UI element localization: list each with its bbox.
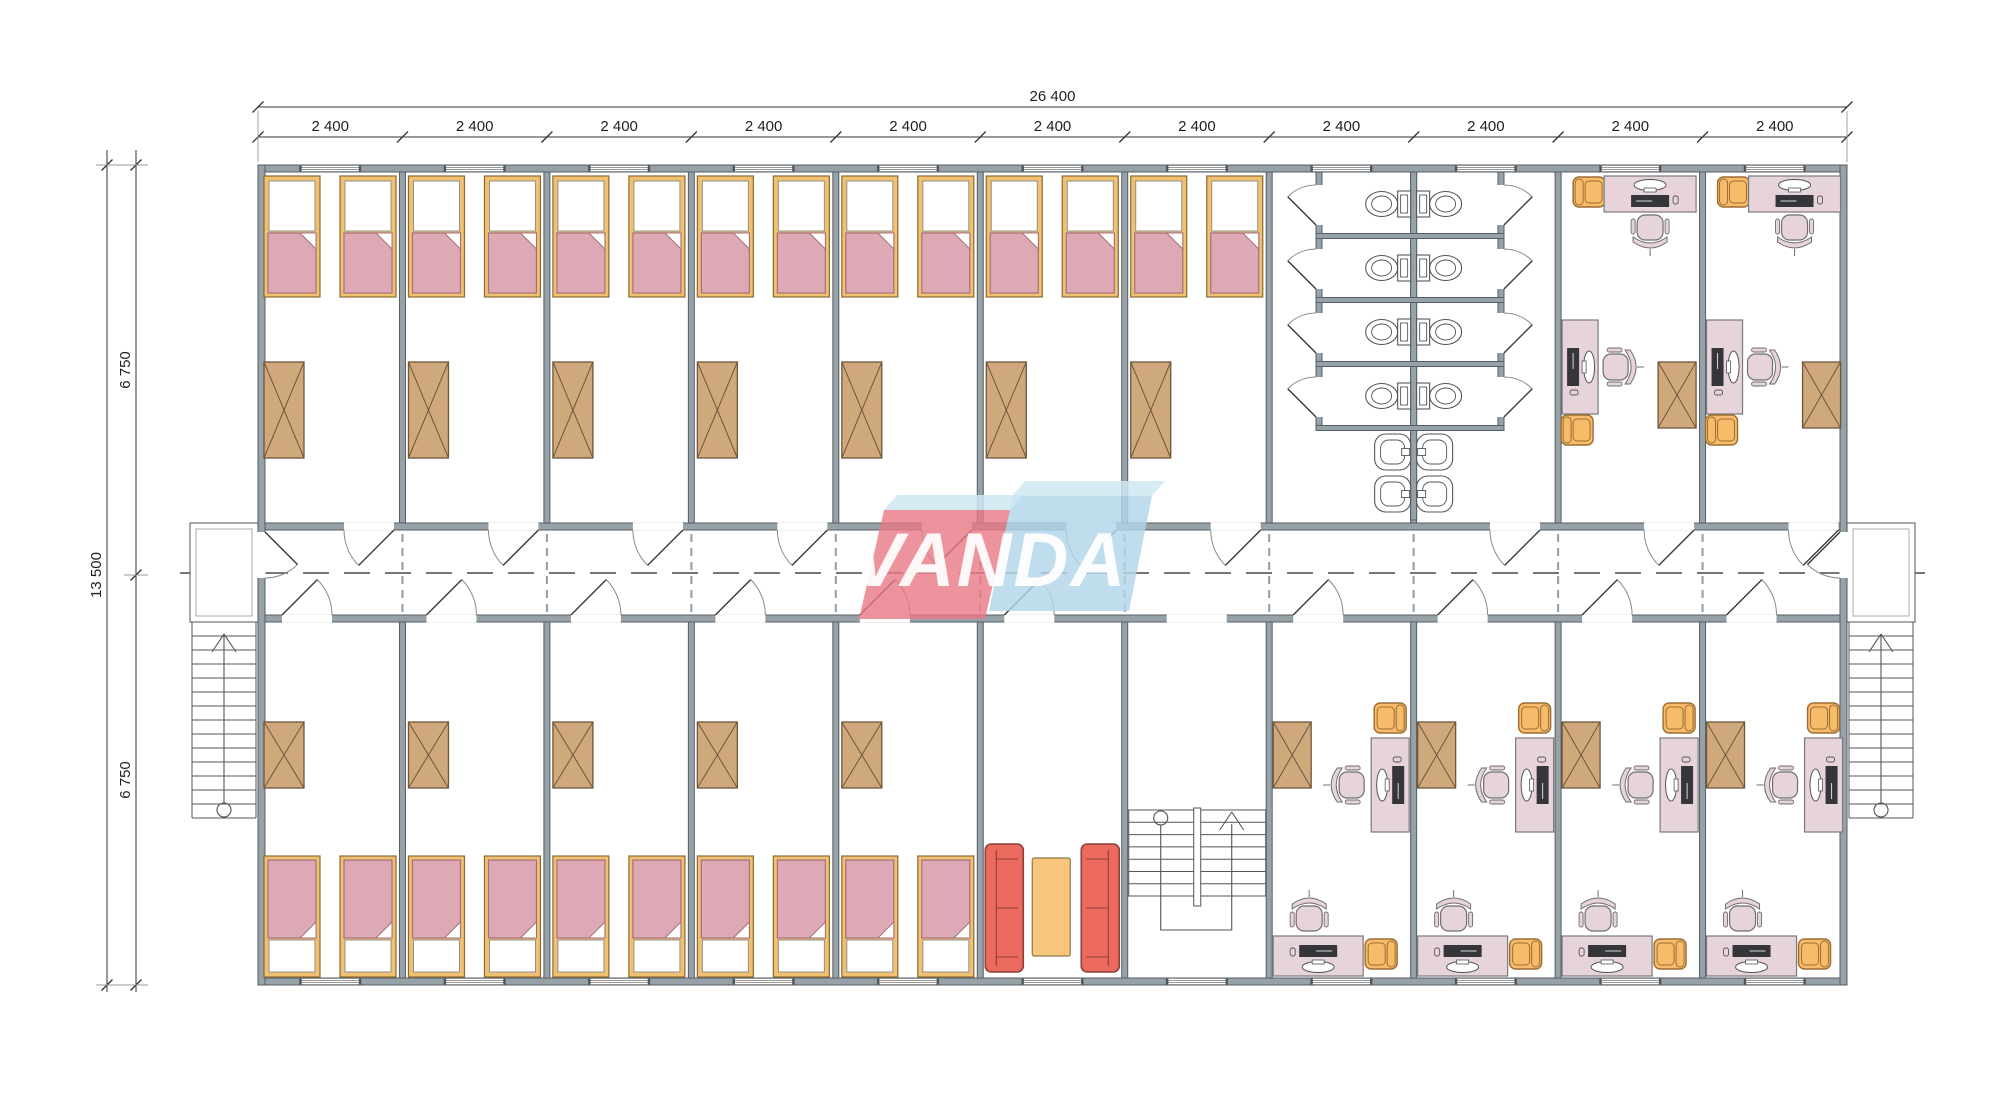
pillow [847,181,893,231]
bed [1207,176,1263,297]
blanket [268,860,316,938]
bed [773,176,829,297]
wall [1316,362,1504,367]
pillow [413,181,459,231]
wardrobe [697,362,737,458]
bed [629,856,685,977]
wall [688,622,694,978]
logo-text: VANDA [853,518,1128,603]
dim-label: 2 400 [889,118,927,135]
coffee-table [1032,858,1070,956]
dim-label: 2 400 [745,118,783,135]
bed [1131,176,1187,297]
dim-label: 2 400 [1756,118,1794,135]
pillow [413,940,459,972]
dim-label: 2 400 [1178,118,1216,135]
bed [986,176,1042,297]
pillow [702,181,748,231]
side-chair [1365,939,1397,969]
bed [697,176,753,297]
window [877,979,939,985]
wall [399,172,405,523]
wall [1700,172,1706,523]
side-chair [1799,939,1831,969]
wardrobe [842,722,882,788]
wall [1266,172,1272,523]
side-chair [1706,415,1738,445]
bed [1062,176,1118,297]
window [1599,166,1661,172]
dim-label: 2 400 [311,118,349,135]
wall [1555,622,1561,978]
dim-label: 6 750 [117,351,134,389]
wall [833,172,839,523]
wardrobe [697,722,737,788]
window [1599,979,1661,985]
window [1166,166,1228,172]
wall [544,622,550,978]
side-chair [1561,415,1593,445]
pillow [489,940,535,972]
wardrobe [1562,722,1600,788]
toilet-icon [1366,383,1411,409]
bed [553,176,609,297]
blanket [777,860,825,938]
bed [264,856,320,977]
pillow [558,181,604,231]
bed [842,176,898,297]
pillow [345,940,391,972]
wardrobe [1803,362,1841,428]
side-chair [1718,177,1750,207]
window [1022,166,1084,172]
pillow [991,181,1037,231]
wardrobe [1658,362,1696,428]
window [299,166,361,172]
blanket [557,860,605,938]
window [1310,166,1372,172]
wall [1122,622,1128,978]
bed [842,856,898,977]
side-chair [1374,703,1406,733]
wall [1411,622,1417,978]
window [1166,979,1228,985]
landing [1847,523,1915,622]
wardrobe [986,362,1026,458]
toilet-icon [1366,191,1411,217]
window [444,979,506,985]
bed [408,176,464,297]
pillow [634,940,680,972]
dim-label: 2 400 [456,118,494,135]
wall [544,172,550,523]
bed [773,856,829,977]
bed [340,176,396,297]
side-chair [1510,939,1542,969]
wardrobe [553,722,593,788]
sink-icon [1417,476,1453,512]
dim-label: 2 400 [600,118,638,135]
toilet-icon [1417,383,1462,409]
toilet-icon [1417,255,1462,281]
pillow [489,181,535,231]
window [877,166,939,172]
top-room-9-toilets [1455,166,1517,172]
pillow [269,181,315,231]
pillow [702,940,748,972]
dim-label: 26 400 [1030,88,1076,105]
bed [629,176,685,297]
wardrobe [553,362,593,458]
blanket [412,860,460,938]
bed [484,176,540,297]
side-chair [1573,177,1605,207]
wall [833,622,839,978]
dim-label: 6 750 [117,761,134,799]
window [1744,979,1806,985]
pillow [558,940,604,972]
window [444,166,506,172]
pillow [345,181,391,231]
wardrobe [1273,722,1311,788]
pillow [923,940,969,972]
window [1455,166,1517,172]
floor-plan-drawing: 26 4002 4002 4002 4002 4002 4002 4002 40… [0,0,2000,1099]
window [1310,979,1372,985]
wardrobe [264,722,304,788]
pillow [269,940,315,972]
window [1022,979,1084,985]
wall [1266,622,1272,978]
wardrobe [1707,722,1745,788]
sofa [1081,844,1119,972]
wall [1316,298,1504,303]
bed [484,856,540,977]
toilet-icon [1366,255,1411,281]
blanket [701,860,749,938]
toilet-icon [1417,191,1462,217]
pillow [778,181,824,231]
bed [340,856,396,977]
side-chair [1663,703,1695,733]
bed [264,176,320,297]
bed [918,856,974,977]
logo-block-bevel [884,495,1023,510]
blanket [488,860,536,938]
sink-icon [1375,434,1411,470]
pillow [1212,181,1258,231]
logo: VANDA [853,481,1165,619]
bed [918,176,974,297]
wall [1122,172,1128,523]
window [733,166,795,172]
window [588,166,650,172]
sink-icon [1375,476,1411,512]
pillow [1067,181,1113,231]
blanket [846,860,894,938]
blanket [633,860,681,938]
wall [1555,172,1561,523]
pillow [634,181,680,231]
dim-label: 2 400 [1323,118,1361,135]
pillow [847,940,893,972]
window [1455,979,1517,985]
wardrobe [408,722,448,788]
side-chair [1808,703,1840,733]
dim-label: 2 400 [1612,118,1650,135]
window [1744,166,1806,172]
wardrobe [1131,362,1171,458]
sink-icon [1417,434,1453,470]
dim-label: 13 500 [88,552,105,598]
blanket [344,860,392,938]
side-chair [1654,939,1686,969]
wall [1700,622,1706,978]
wall [977,622,983,978]
pillow [1136,181,1182,231]
window [588,979,650,985]
blanket [922,860,970,938]
toilet-icon [1366,319,1411,345]
sofa [985,844,1023,972]
wall [1316,234,1504,239]
wall [399,622,405,978]
window [299,979,361,985]
wardrobe [408,362,448,458]
floor-plan-canvas: 26 4002 4002 4002 4002 4002 4002 4002 40… [0,0,2000,1099]
dim-label: 2 400 [1467,118,1505,135]
wall [977,172,983,523]
logo-block-bevel [1012,481,1165,496]
pillow [923,181,969,231]
pillow [778,940,824,972]
toilet-icon [1417,319,1462,345]
wall [1316,426,1504,431]
window [733,979,795,985]
bed [553,856,609,977]
dim-label: 2 400 [1034,118,1072,135]
wardrobe [1418,722,1456,788]
landing [190,523,258,622]
wall [688,172,694,523]
wall [1411,172,1417,520]
side-chair [1519,703,1551,733]
bed [697,856,753,977]
wardrobe [842,362,882,458]
wardrobe [264,362,304,458]
bed [408,856,464,977]
